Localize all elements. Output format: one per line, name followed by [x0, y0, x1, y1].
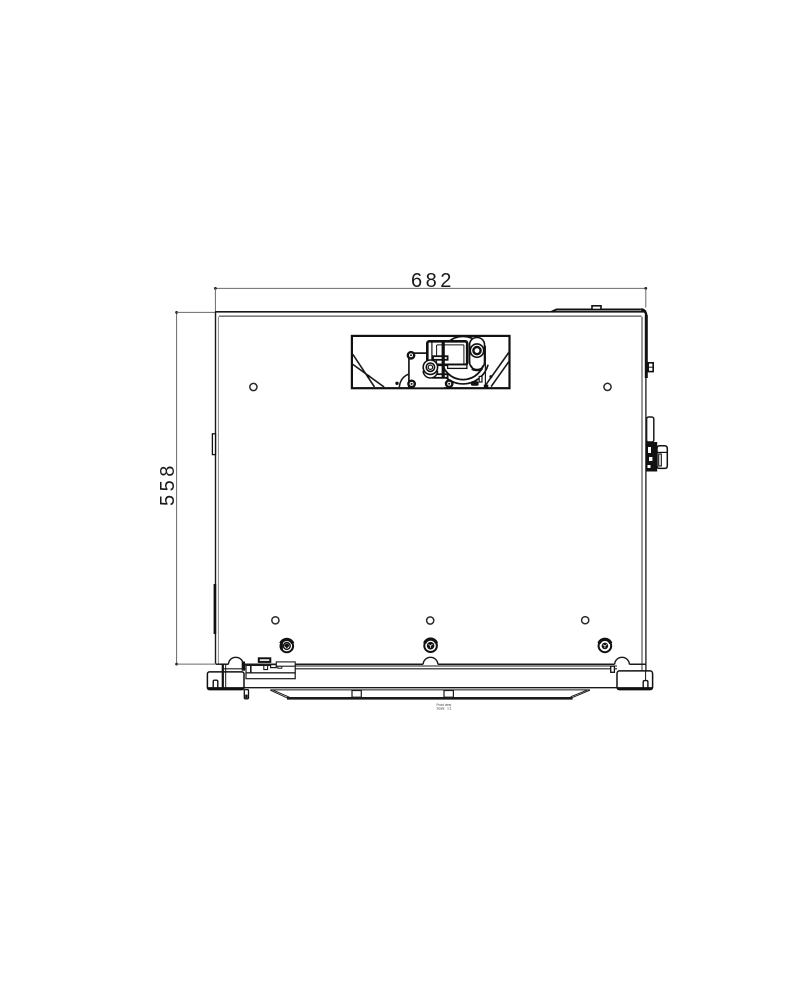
svg-text:Scale 1:1: Scale 1:1 — [437, 707, 452, 711]
svg-text:682: 682 — [411, 270, 455, 292]
svg-text:558: 558 — [157, 462, 179, 506]
